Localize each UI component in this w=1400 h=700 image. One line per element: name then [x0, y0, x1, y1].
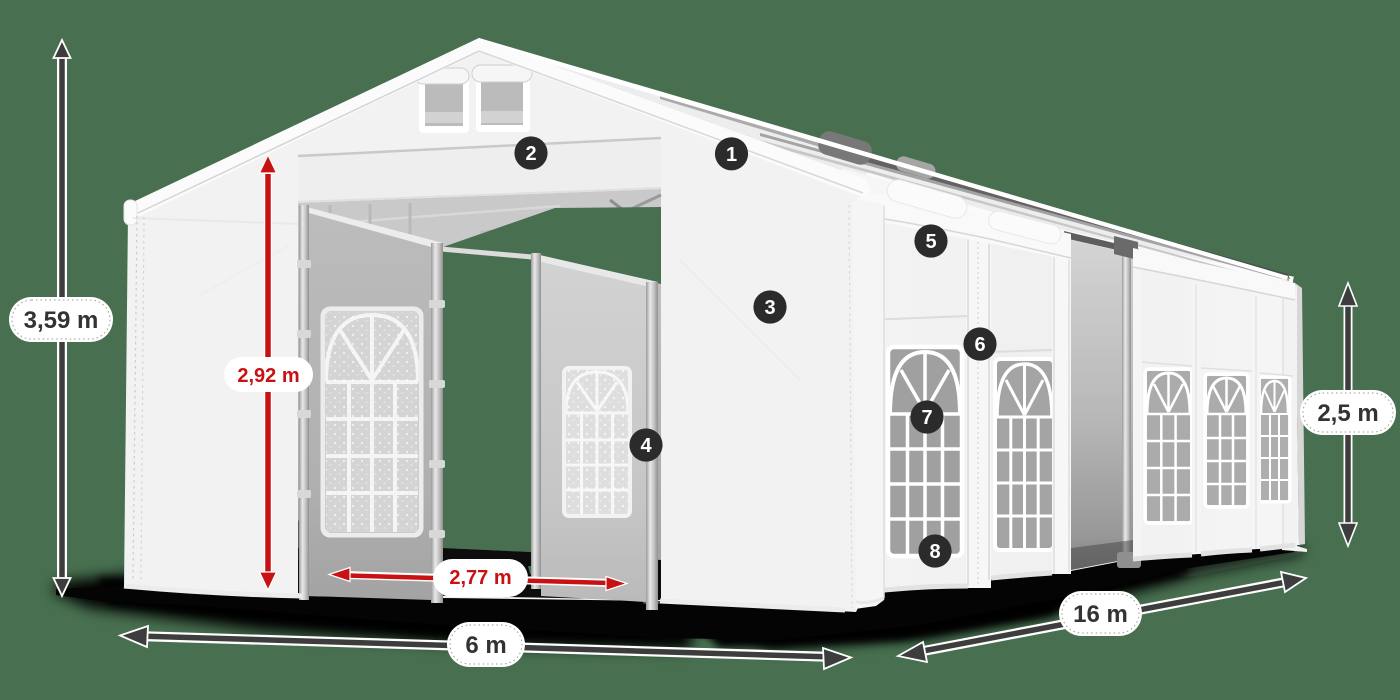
svg-text:8: 8: [929, 541, 940, 563]
svg-text:2,92 m: 2,92 m: [237, 365, 299, 387]
svg-text:2: 2: [525, 143, 536, 165]
svg-text:6 m: 6 m: [465, 632, 506, 659]
svg-text:2,77 m: 2,77 m: [449, 567, 511, 589]
svg-text:6: 6: [974, 334, 985, 356]
svg-text:4: 4: [640, 435, 652, 457]
svg-text:3: 3: [764, 297, 775, 319]
svg-text:7: 7: [921, 407, 932, 429]
svg-text:5: 5: [925, 231, 936, 253]
svg-text:16 m: 16 m: [1073, 601, 1128, 628]
svg-text:2,5 m: 2,5 m: [1317, 400, 1378, 427]
svg-text:3,59 m: 3,59 m: [24, 307, 99, 334]
svg-text:1: 1: [726, 144, 737, 166]
